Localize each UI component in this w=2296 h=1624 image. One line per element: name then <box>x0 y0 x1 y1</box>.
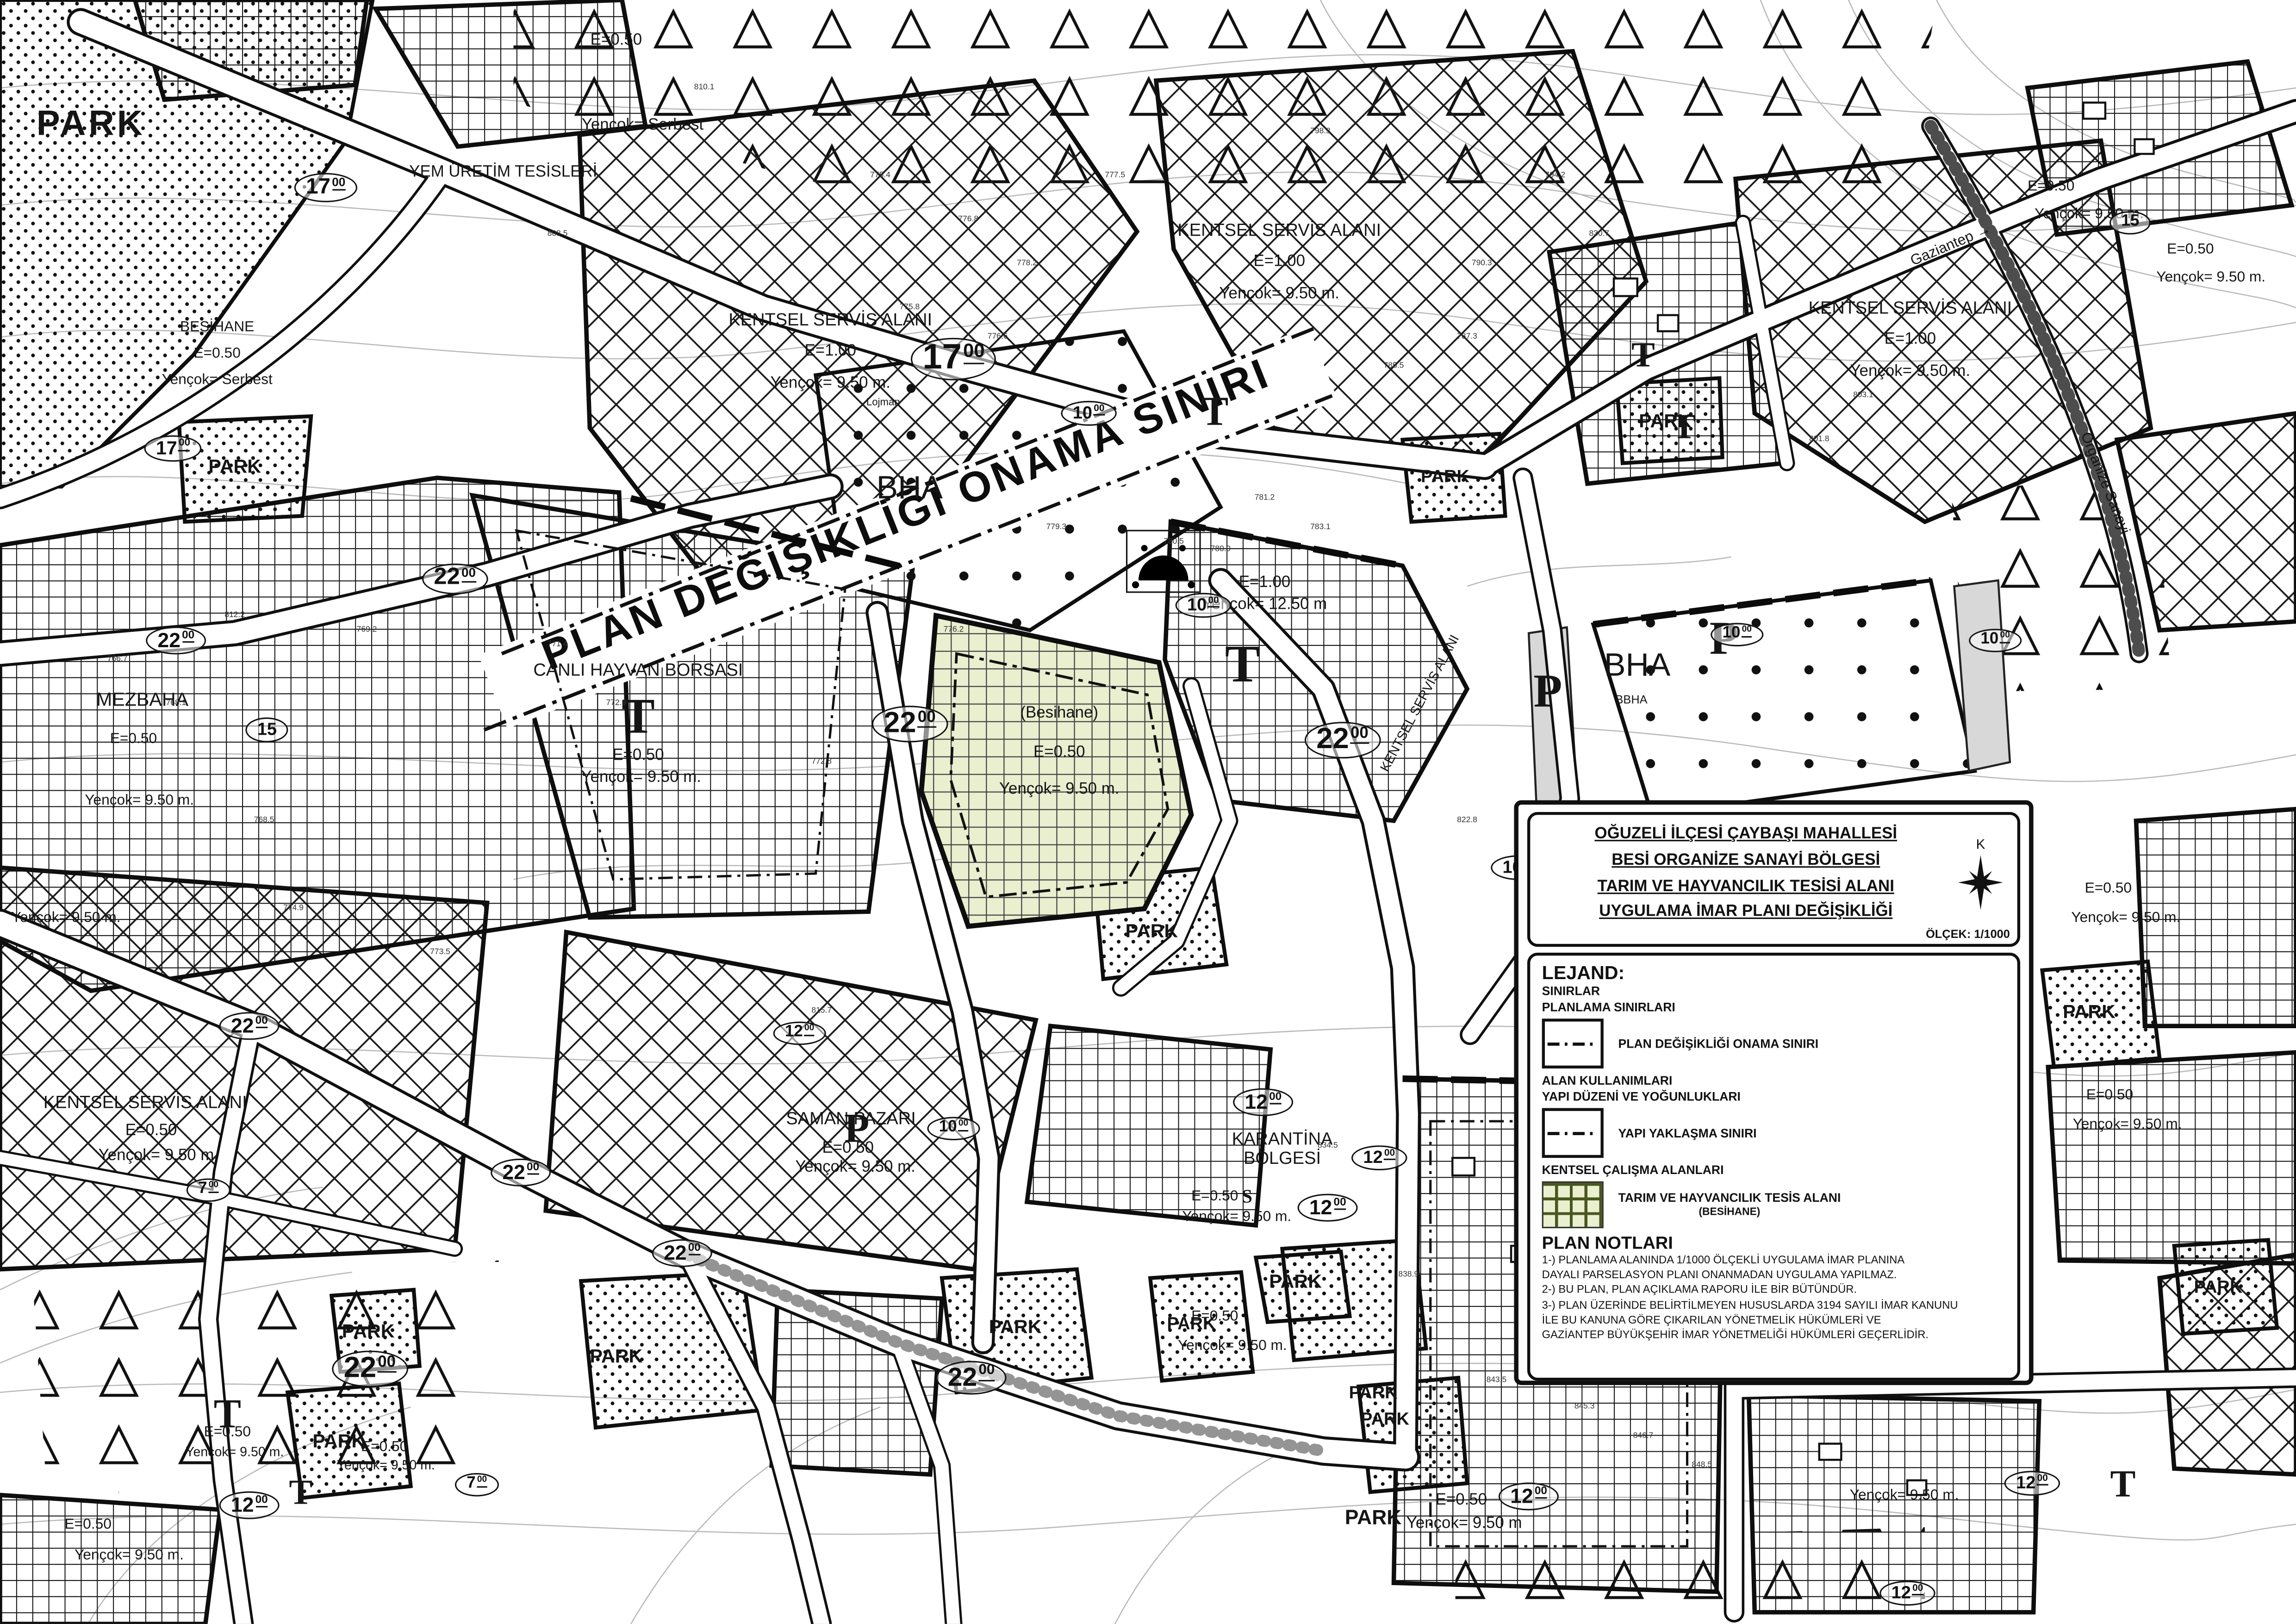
dashdot-approach-symbol <box>1542 1108 1604 1158</box>
legend-label-yaklasma-siniri: YAPI YAKLAŞMA SINIRI <box>1618 1125 1757 1140</box>
legend-body: LEJAND: SINIRLAR PLANLAMA SINIRLARI PLAN… <box>1527 953 2020 1380</box>
agriculture-area-swatch <box>1542 1181 1604 1228</box>
legend-label-onama-siniri: PLAN DEĞİŞİKLİĞİ ONAMA SINIRI <box>1618 1036 1819 1051</box>
legend-section-kentsel-calisma: KENTSEL ÇALIŞMA ALANLARI <box>1542 1162 2006 1178</box>
title-line: UYGULAMA İMAR PLANI DEĞİŞİKLİĞİ <box>1542 900 1950 926</box>
title-line: BESİ ORGANİZE SANAYİ BÖLGESİ <box>1542 849 1950 874</box>
north-compass-icon: K <box>1956 830 2006 920</box>
plan-note-line: 2-) BU PLAN, PLAN AÇIKLAMA RAPORU İLE Bİ… <box>1542 1283 2006 1298</box>
legend-panel: OĞUZELİ İLÇESİ ÇAYBAŞI MAHALLESİBESİ ORG… <box>1514 800 2033 1385</box>
legend-row-onama-siniri: PLAN DEĞİŞİKLİĞİ ONAMA SINIRI <box>1542 1018 2006 1068</box>
plan-notes-heading: PLAN NOTLARI <box>1542 1232 2006 1252</box>
plan-note-line: 1-) PLANLAMA ALANINDA 1/1000 ÖLÇEKLİ UYG… <box>1542 1253 2006 1268</box>
legend-section-planlama: PLANLAMA SINIRLARI <box>1542 999 2006 1016</box>
plan-note-line: GAZİANTEP BÜYÜKŞEHİR İMAR YÖNETMELİĞİ HÜ… <box>1542 1328 2006 1343</box>
legend-label-besihane: (BESİHANE) <box>1618 1205 1841 1218</box>
north-letter: K <box>1976 837 1985 852</box>
title-line: OĞUZELİ İLÇESİ ÇAYBAŞI MAHALLESİ <box>1542 822 1950 848</box>
agriculture-facility-parcel <box>921 616 1191 926</box>
legend-label-tarim-alani: TARIM VE HAYVANCILIK TESİS ALANI <box>1618 1190 1841 1205</box>
imar-plan-sheet: PLAN DEĞİŞİKLİĞİ ONAMA SINIRI PARKPARKBE… <box>0 0 2296 1624</box>
title-line: TARIM VE HAYVANCILIK TESİSİ ALANI <box>1542 874 1950 900</box>
dashdot-boundary-symbol <box>1542 1018 1604 1068</box>
legend-section-alan-kullanimlari: ALAN KULLANIMLARI <box>1542 1073 2006 1089</box>
plan-note-line: İLE BU KANUNA GÖRE ÇIKARILAN YÖNETMELİK … <box>1542 1313 2006 1329</box>
legend-row-tarim-alani: TARIM VE HAYVANCILIK TESİS ALANI (BESİHA… <box>1542 1181 2006 1228</box>
plan-note-line: 3-) PLAN ÜZERİNDE BELİRTİLMEYEN HUSUSLAR… <box>1542 1298 2006 1313</box>
legend-heading: LEJAND: <box>1542 962 2006 983</box>
title-lines: OĞUZELİ İLÇESİ ÇAYBAŞI MAHALLESİBESİ ORG… <box>1542 822 1950 927</box>
plan-note-line: DAYALI PARSELASYON PLANI ONANMADAN UYGUL… <box>1542 1268 2006 1283</box>
title-block: OĞUZELİ İLÇESİ ÇAYBAŞI MAHALLESİBESİ ORG… <box>1527 812 2020 947</box>
plan-notes: 1-) PLANLAMA ALANINDA 1/1000 ÖLÇEKLİ UYG… <box>1542 1253 2006 1343</box>
legend-section-yapi-duzeni: YAPI DÜZENİ VE YOĞUNLUKLARI <box>1542 1089 2006 1105</box>
legend-section-sinirlar: SINIRLAR <box>1542 983 2006 999</box>
scale-label: ÖLÇEK: 1/1000 <box>1926 928 2010 941</box>
legend-row-yaklasma-siniri: YAPI YAKLAŞMA SINIRI <box>1542 1108 2006 1158</box>
